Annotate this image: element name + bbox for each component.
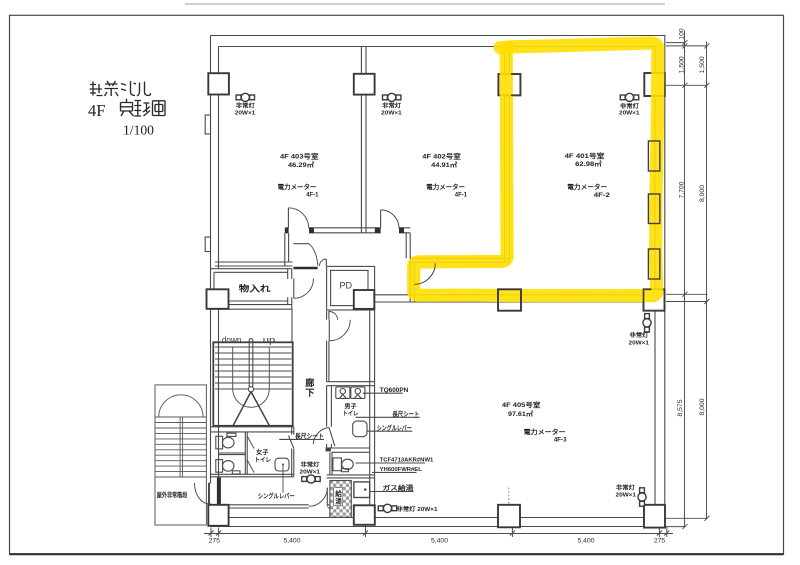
svg-text:4F-1: 4F-1 xyxy=(455,191,468,198)
svg-text:44.91㎡: 44.91㎡ xyxy=(431,160,458,169)
svg-text:長尺シート: 長尺シート xyxy=(295,431,324,440)
svg-text:4F-2: 4F-2 xyxy=(594,192,611,199)
svg-text:62.98㎡: 62.98㎡ xyxy=(575,159,602,168)
svg-text:非常灯: 非常灯 xyxy=(236,102,255,110)
svg-text:4F 403号室: 4F 403号室 xyxy=(280,152,319,161)
svg-text:非常灯 20W×1: 非常灯 20W×1 xyxy=(397,505,439,513)
svg-text:1,500: 1,500 xyxy=(679,56,686,73)
svg-text:ガス給湯: ガス給湯 xyxy=(382,483,414,492)
svg-text:TCF4713AKR#NW1: TCF4713AKR#NW1 xyxy=(380,458,434,464)
svg-text:4F 402号室: 4F 402号室 xyxy=(422,152,461,161)
svg-text:8,000: 8,000 xyxy=(699,398,706,415)
svg-text:20W×1: 20W×1 xyxy=(381,110,402,116)
svg-text:4F-1: 4F-1 xyxy=(306,191,319,198)
svg-text:5,400: 5,400 xyxy=(431,538,448,545)
svg-text:20W×1: 20W×1 xyxy=(616,493,637,499)
svg-text:給: 給 xyxy=(335,489,342,498)
svg-text:4F 405号室: 4F 405号室 xyxy=(502,400,541,409)
svg-text:非常灯: 非常灯 xyxy=(301,461,320,469)
svg-text:5,400: 5,400 xyxy=(283,538,300,545)
svg-text:4F 401号室: 4F 401号室 xyxy=(565,151,606,160)
svg-text:電力メーター: 電力メーター xyxy=(278,182,317,191)
svg-text:4F-3: 4F-3 xyxy=(554,436,567,443)
svg-text:1,500: 1,500 xyxy=(699,56,706,73)
svg-text:トイレ: トイレ xyxy=(255,457,272,464)
svg-text:YH600FWR#EL: YH600FWR#EL xyxy=(380,467,423,473)
svg-text:長尺シート: 長尺シート xyxy=(392,409,419,418)
svg-text:電力メーター: 電力メーター xyxy=(524,427,566,436)
svg-text:廊: 廊 xyxy=(305,377,314,388)
svg-text:電力メーター: 電力メーター xyxy=(567,182,607,191)
svg-text:湯: 湯 xyxy=(335,497,342,506)
svg-text:down: down xyxy=(222,335,242,345)
svg-text:シングルレバー: シングルレバー xyxy=(377,423,412,432)
svg-text:20W×1: 20W×1 xyxy=(629,341,650,347)
svg-text:7,700: 7,700 xyxy=(679,181,686,198)
svg-text:275: 275 xyxy=(654,538,666,545)
svg-text:下: 下 xyxy=(305,388,314,398)
svg-text:女子: 女子 xyxy=(256,449,269,457)
svg-text:物入れ: 物入れ xyxy=(239,282,271,293)
svg-text:非常灯: 非常灯 xyxy=(382,102,401,110)
svg-text:up: up xyxy=(263,335,276,345)
svg-text:非常灯: 非常灯 xyxy=(620,102,639,110)
svg-text:TQ600PN: TQ600PN xyxy=(380,387,409,394)
svg-text:4F: 4F xyxy=(88,101,105,120)
svg-text:屋外非常階段: 屋外非常階段 xyxy=(157,490,188,499)
svg-text:男子: 男子 xyxy=(345,403,357,411)
svg-text:275: 275 xyxy=(209,538,221,545)
svg-text:8,575: 8,575 xyxy=(677,399,684,416)
svg-text:100: 100 xyxy=(678,28,685,40)
svg-text:1/100: 1/100 xyxy=(123,123,154,138)
svg-text:8,000: 8,000 xyxy=(699,185,706,202)
svg-text:非常灯: 非常灯 xyxy=(630,331,649,339)
svg-text:20W×1: 20W×1 xyxy=(235,110,256,116)
svg-text:シングルレバー: シングルレバー xyxy=(258,491,295,500)
svg-text:46.29㎡: 46.29㎡ xyxy=(288,160,315,169)
svg-text:20W×1: 20W×1 xyxy=(300,470,321,476)
svg-text:20W×1: 20W×1 xyxy=(619,111,640,117)
svg-text:97.61㎡: 97.61㎡ xyxy=(508,409,534,418)
svg-text:トイレ: トイレ xyxy=(343,411,359,418)
svg-text:電力メーター: 電力メーター xyxy=(426,182,465,191)
svg-text:5,400: 5,400 xyxy=(577,538,594,545)
svg-text:非常灯: 非常灯 xyxy=(616,484,635,492)
svg-text:PD: PD xyxy=(340,281,353,291)
